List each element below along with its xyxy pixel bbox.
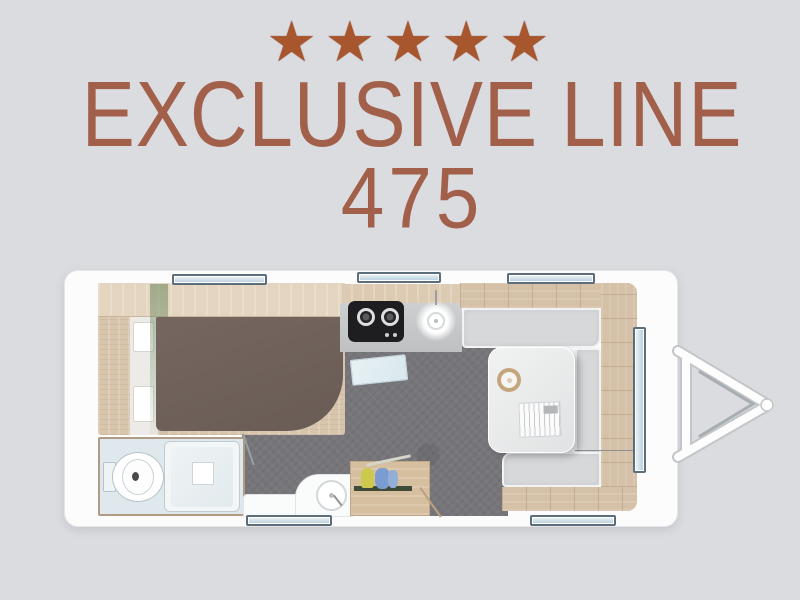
dinette-backrest-right [601, 283, 637, 511]
window-top-left [172, 274, 267, 285]
toilet-flush [132, 472, 139, 481]
window-top-middle [357, 272, 441, 283]
faucet-icon [435, 290, 437, 305]
stove-knob [385, 333, 389, 337]
dinette-cushion [462, 308, 601, 348]
sink-drain [434, 319, 438, 323]
stove-knob [393, 333, 397, 337]
drawbar-hitch-icon [660, 338, 790, 472]
cushion-seam [575, 450, 637, 451]
window-top-right [507, 273, 595, 284]
magazine-cover-block [544, 405, 558, 414]
stove-burner [357, 308, 375, 326]
window-bottom-right [530, 515, 616, 526]
vanity-counter [243, 494, 303, 517]
magazine-icon [518, 401, 561, 437]
bed-headboard [98, 283, 345, 317]
cabinet-item-yellow [361, 468, 374, 488]
caravan-floorplan [0, 0, 800, 600]
cabinet-item-blue [388, 470, 398, 488]
bowl-center [507, 378, 512, 383]
stove-burner [381, 308, 399, 326]
shower-drain [192, 462, 214, 485]
window-front [633, 327, 646, 473]
dinette-backrest-bottom [502, 487, 637, 511]
dinette-cushion [502, 452, 601, 487]
window-bottom-left [246, 515, 332, 526]
bed-mattress [156, 317, 343, 431]
